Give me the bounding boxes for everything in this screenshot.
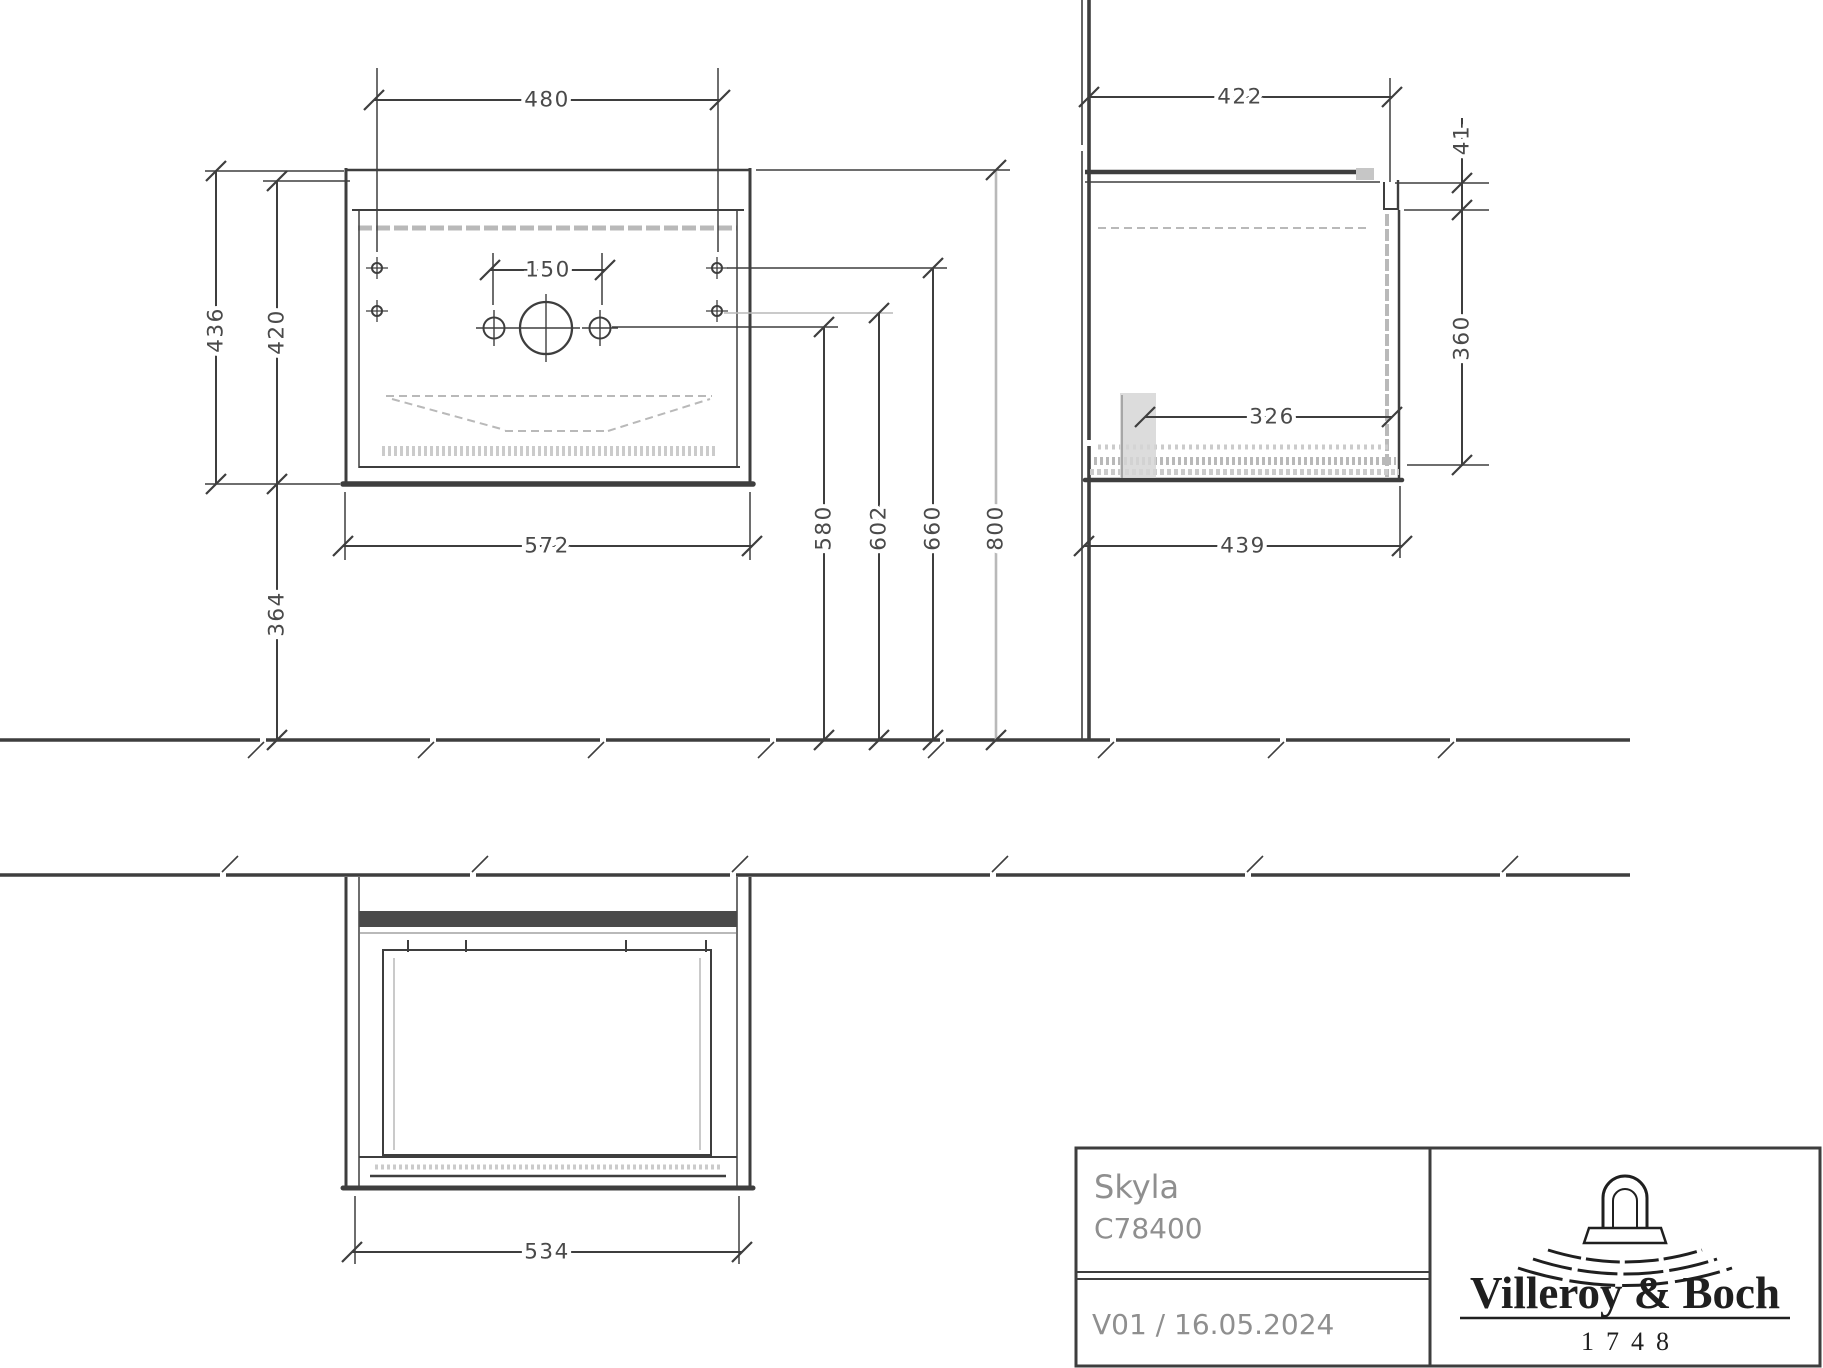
- side-basin-front-edge: [1384, 180, 1399, 210]
- dim-upper-mount-height: 660: [921, 505, 946, 551]
- floor-hatch: [248, 742, 1454, 758]
- brand-year: 1748: [1581, 1327, 1681, 1356]
- dim-wall-to-front: 422: [1217, 85, 1263, 110]
- dim-cabinet-width: 572: [524, 534, 570, 559]
- dim-basin-edge: 41: [1450, 125, 1475, 155]
- wall-hatch: [222, 856, 1518, 872]
- brand-name: Villeroy & Boch: [1470, 1268, 1780, 1318]
- dim-faucet-spacing: 150: [525, 258, 571, 283]
- drawing-canvas: 480 150 436 420 364 572 580 602 660: [0, 0, 1823, 1368]
- plan-wall-line: [0, 856, 1630, 875]
- dim-inner-depth: 326: [1249, 405, 1295, 430]
- plan-view: 534: [343, 877, 753, 1265]
- dim-front-height: 360: [1450, 315, 1475, 361]
- dim-cabinet-height: 420: [265, 309, 290, 355]
- faucet-holes: [476, 294, 618, 362]
- plan-back-rail: [359, 911, 737, 927]
- article-number: C78400: [1094, 1212, 1203, 1245]
- dim-basin-top-height: 800: [984, 505, 1009, 551]
- side-dimensions: 422 41 360 326 439: [1084, 78, 1489, 559]
- plan-basin-bowl: [383, 950, 711, 1155]
- dimension-ticks: [206, 87, 1472, 1262]
- product-name: Skyla: [1094, 1168, 1179, 1206]
- dim-total-depth: 439: [1220, 534, 1266, 559]
- dim-lower-mount-height: 602: [867, 505, 892, 551]
- side-drain-bracket: [1120, 393, 1156, 478]
- dim-mounting-width: 480: [524, 88, 570, 113]
- dim-floor-clearance: 364: [265, 591, 290, 637]
- basin-hidden-contour: [382, 396, 718, 451]
- title-block: Skyla C78400 V01 / 16.05.2024 Villeroy &…: [1076, 1148, 1820, 1366]
- dim-faucet-height: 580: [812, 505, 837, 551]
- dim-plan-width: 534: [524, 1240, 570, 1265]
- side-basin-edge-shade: [1356, 168, 1374, 180]
- dim-total-height: 436: [204, 307, 229, 353]
- side-view: [1085, 168, 1402, 481]
- side-wall-line: [1082, 0, 1089, 740]
- technical-drawing-sheet: 480 150 436 420 364 572 580 602 660: [0, 0, 1823, 1368]
- version-date: V01 / 16.05.2024: [1092, 1308, 1334, 1341]
